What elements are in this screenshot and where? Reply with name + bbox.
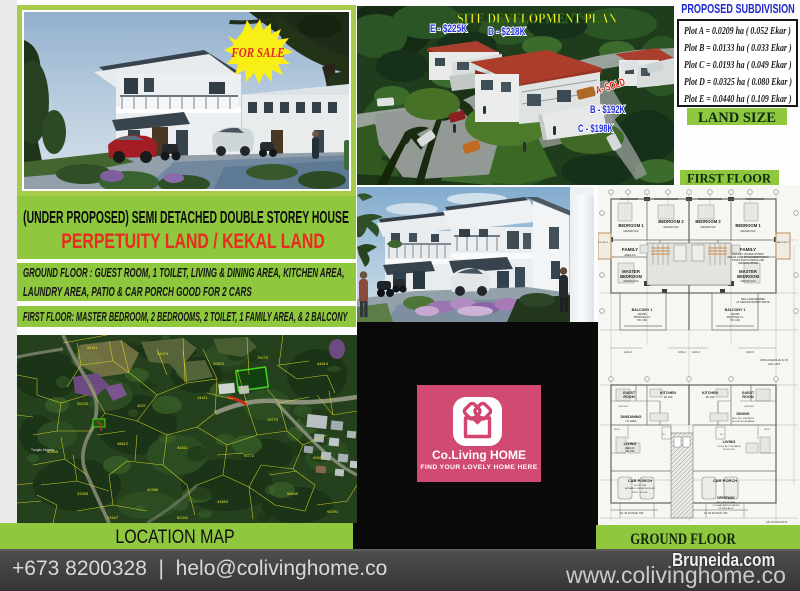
svg-text:VERANDA SPACE: VERANDA SPACE [738, 262, 758, 265]
svg-text:SPILL ADDITIONAL: SPILL ADDITIONAL [716, 501, 736, 504]
svg-text:ROOM: ROOM [742, 395, 753, 399]
svg-text:B - $192K: B - $192K [590, 104, 625, 117]
svg-text:GRAND FLR: GRAND FLR [624, 279, 639, 283]
svg-text:BALCONY 2: BALCONY 2 [598, 241, 609, 244]
svg-text:GRAND FLR: GRAND FLR [741, 279, 756, 283]
svg-text:54811: 54811 [177, 445, 189, 450]
svg-text:23167: 23167 [107, 515, 119, 520]
svg-text:10-45 RANGE 780: 10-45 RANGE 780 [704, 511, 728, 515]
svg-text:CAR PORCH: CAR PORCH [628, 478, 652, 483]
svg-text:GRAND FLR: GRAND FLR [664, 225, 679, 229]
svg-text:34474: 34474 [157, 351, 169, 356]
svg-text:78772: 78772 [243, 453, 255, 458]
svg-text:BALCONY 1: BALCONY 1 [725, 308, 746, 312]
svg-text:GRAND FLR: GRAND FLR [701, 225, 716, 229]
svg-text:BALCONY 2: BALCONY 2 [777, 241, 790, 244]
svg-text:LIVING: LIVING [624, 442, 637, 446]
svg-text:Tungku Malaria: Tungku Malaria [31, 448, 54, 452]
svg-text:AVA 1/83: AVA 1/83 [768, 362, 780, 366]
svg-text:FIRST FLOOR: FIRST FLOOR [687, 171, 772, 185]
svg-text:LOCATION MAP: LOCATION MAP [115, 526, 234, 548]
svg-text:26230: 26230 [77, 401, 89, 406]
svg-text:79770: 79770 [267, 417, 279, 422]
svg-text:PERPETUITY LAND / KEKAL LAND: PERPETUITY LAND / KEKAL LAND [61, 229, 325, 253]
svg-text:LAND SIZE: LAND SIZE [698, 110, 776, 125]
svg-text:AVA 2: AVA 2 [624, 350, 632, 354]
svg-text:62342: 62342 [177, 515, 189, 520]
svg-text:APPARE CONCRETE FILLER: APPARE CONCRETE FILLER [625, 487, 655, 490]
svg-text:AVA 3: AVA 3 [746, 350, 754, 354]
svg-text:FAMILY: FAMILY [740, 247, 756, 252]
svg-text:20874: 20874 [213, 361, 225, 366]
svg-text:AT GROUND APPROX SPACE: AT GROUND APPROX SPACE [736, 301, 770, 304]
svg-text:40368: 40368 [147, 487, 159, 492]
svg-text:ML FLOOR: ML FLOOR [723, 449, 735, 451]
svg-text:COLLABORATIVE DRIVES: COLLABORATIVE DRIVES [713, 504, 740, 507]
svg-text:BELL ML CONCRETE: BELL ML CONCRETE [732, 418, 754, 420]
svg-text:LAUNDRY: LAUNDRY [618, 405, 629, 408]
svg-text:LAUNDRY AREA, PATIO & CAR PORC: LAUNDRY AREA, PATIO & CAR PORCH GOOD FOR… [23, 285, 252, 299]
svg-text:DRIVEWAY: DRIVEWAY [717, 496, 736, 500]
svg-text:AVA 2: AVA 2 [678, 350, 686, 354]
svg-text:BEDROOM 2: BEDROOM 2 [658, 219, 684, 224]
svg-text:STYLE ML CONCRETE: STYLE ML CONCRETE [717, 446, 741, 448]
svg-text:60672: 60672 [313, 455, 325, 460]
svg-text:LAUNDRY: LAUNDRY [744, 405, 755, 408]
svg-text:HD. 1/90: HD. 1/90 [730, 319, 740, 322]
svg-text:GROUND FLOOR: GROUND FLOOR [630, 531, 736, 549]
svg-text:FIRST FLOOR: MASTER BEDROOM, 2: FIRST FLOOR: MASTER BEDROOM, 2 BEDROOMS,… [23, 311, 348, 325]
svg-text:FAMILY: FAMILY [622, 247, 638, 252]
svg-text:LIVING: LIVING [723, 440, 736, 444]
svg-text:PROPOSED SUBDIVISION: PROPOSED SUBDIVISION [681, 3, 795, 16]
svg-text:44653: 44653 [217, 499, 229, 504]
svg-text:ROOM: ROOM [623, 395, 634, 399]
svg-text:BEDROOM: BEDROOM [620, 274, 642, 279]
svg-text:58649: 58649 [287, 491, 299, 496]
svg-text:STONES AUTO: STONES AUTO [718, 507, 734, 510]
svg-text:DINING: DINING [736, 412, 749, 416]
svg-text:KITCHEN: KITCHEN [660, 391, 676, 395]
svg-text:14411: 14411 [197, 395, 209, 400]
svg-text:76170: 76170 [257, 355, 269, 360]
svg-text:DIN/DINING: DIN/DINING [621, 415, 642, 419]
svg-text:BEDROOM 1: BEDROOM 1 [618, 223, 644, 228]
svg-text:ML 1/99: ML 1/99 [706, 396, 715, 399]
svg-text:GRAND FLR: GRAND FLR [741, 229, 756, 233]
svg-text:CAR PORCH: CAR PORCH [713, 478, 737, 483]
svg-text:GRAND FLR: GRAND FLR [624, 229, 639, 233]
svg-text:33265: 33265 [77, 491, 89, 496]
svg-text:AD 45 RM 200 B: AD 45 RM 200 B [766, 520, 787, 524]
svg-text:BEDROOM 2: BEDROOM 2 [695, 219, 721, 224]
svg-text:FLOOR HOUSE AREA: FLOOR HOUSE AREA [732, 420, 755, 423]
svg-text:ML 1/99: ML 1/99 [664, 396, 673, 399]
svg-text:KITCHEN: KITCHEN [702, 391, 718, 395]
svg-text:LIV. AREA: LIV. AREA [625, 420, 636, 423]
svg-text:Plot C = 0.0193 ha ( 0.049 Eka: Plot C = 0.0193 ha ( 0.049 Ekar ) [684, 60, 792, 71]
svg-text:GROUND FLOOR : GUEST ROOM, 1: GROUND FLOOR : GUEST ROOM, 1 TOILET, LIV… [23, 266, 344, 280]
svg-text:BALCONY 1: BALCONY 1 [632, 308, 653, 312]
svg-text:54411: 54411 [87, 345, 99, 350]
svg-text:PATIO: PATIO [614, 428, 621, 431]
svg-text:Plot E = 0.0440 ha ( 0.109 Eka: Plot E = 0.0440 ha ( 0.109 Ekar ) [684, 94, 792, 105]
svg-text:FOOT TYPE: FOOT TYPE [634, 485, 647, 487]
svg-text:PROV. FLOOR: PROV. FLOOR [633, 492, 648, 494]
svg-text:48612: 48612 [117, 441, 129, 446]
svg-text:WC: WC [720, 434, 724, 436]
svg-text:44614: 44614 [317, 361, 329, 366]
svg-text:Plot B = 0.0133 ha ( 0.033 Eka: Plot B = 0.0133 ha ( 0.033 Ekar ) [684, 43, 792, 54]
svg-text:D - $218K: D - $218K [488, 26, 526, 38]
svg-text:BEDROOM: BEDROOM [737, 274, 759, 279]
svg-text:(UNDER PROPOSED) SEMI DETACHED: (UNDER PROPOSED) SEMI DETACHED DOUBLE ST… [23, 208, 349, 227]
svg-text:SITE DEVELOPMENT PLAN: SITE DEVELOPMENT PLAN [457, 10, 617, 26]
svg-text:E - $225K: E - $225K [430, 23, 467, 35]
svg-text:PATIO: PATIO [764, 428, 771, 431]
svg-text:HD. 1/90: HD. 1/90 [637, 319, 647, 322]
svg-text:BEDROOM 1: BEDROOM 1 [735, 223, 761, 228]
svg-text:ML 2/99: ML 2/99 [626, 450, 635, 453]
svg-text:FOR SALE: FOR SALE [231, 45, 285, 60]
svg-text:AREA 9.0: AREA 9.0 [624, 253, 636, 257]
svg-text:4027: 4027 [137, 403, 147, 408]
svg-text:C - $198K: C - $198K [578, 123, 613, 136]
svg-text:Plot D = 0.0325 ha ( 0.080 Eka: Plot D = 0.0325 ha ( 0.080 Ekar ) [684, 77, 792, 88]
svg-text:WC: WC [662, 434, 666, 436]
svg-text:Plot A = 0.0209 ha ( 0.052 Eka: Plot A = 0.0209 ha ( 0.052 Ekar ) [684, 26, 791, 37]
svg-text:98791: 98791 [327, 509, 339, 514]
svg-text:AVA 2: AVA 2 [692, 350, 700, 354]
svg-text:10-45 RANGE 780: 10-45 RANGE 780 [620, 511, 644, 515]
